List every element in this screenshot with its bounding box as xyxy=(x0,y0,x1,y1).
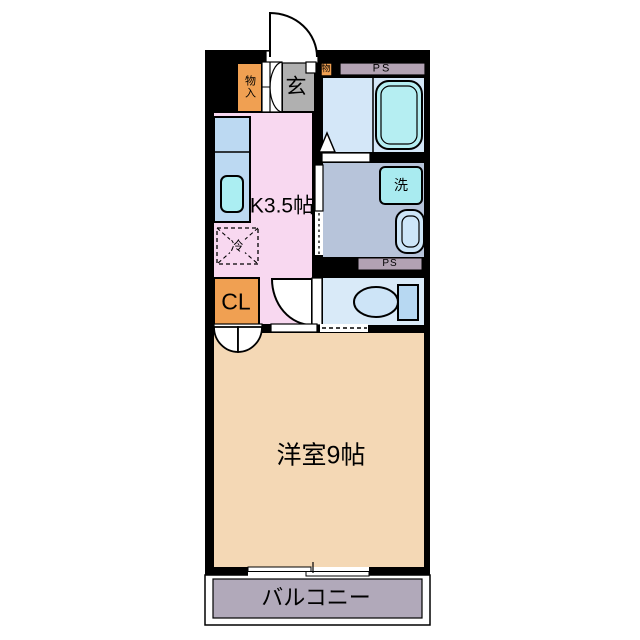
pipe-space-top-label: PS xyxy=(373,64,392,75)
entrance-storage-door xyxy=(262,62,282,112)
washer-label: 洗 xyxy=(394,178,408,192)
washroom-sliding-door xyxy=(315,165,323,255)
entrance-storage-label: 物入 xyxy=(244,75,255,99)
toilet-bowl xyxy=(354,287,398,317)
entrance-step xyxy=(306,62,316,73)
small-storage-label: 物 xyxy=(321,65,330,74)
refrigerator-label: 冷 xyxy=(230,240,243,253)
closet-label: CL xyxy=(221,291,250,314)
bathtub xyxy=(376,81,422,149)
wall-dashed-opening xyxy=(320,324,368,332)
entrance-door-arc xyxy=(270,13,317,57)
floorplan-drawing xyxy=(0,0,640,640)
pipe-space-bottom-label: PS xyxy=(382,259,397,269)
kitchen-label: K3.5帖 xyxy=(250,196,314,217)
bathroom-threshold xyxy=(322,153,370,162)
toilet-door-leaf xyxy=(312,278,322,325)
floorplan: 玄 物入 物 PS 洗 K3.5帖 冷 CL PS 洋室9帖 バルコニー xyxy=(0,0,640,640)
kitchen-sink xyxy=(221,176,243,212)
entrance-label: 玄 xyxy=(286,77,307,98)
kitchen-doorway xyxy=(271,324,317,332)
toilet-tank xyxy=(398,285,418,320)
balcony-label: バルコニー xyxy=(261,587,371,609)
main-room-label: 洋室9帖 xyxy=(277,444,366,469)
